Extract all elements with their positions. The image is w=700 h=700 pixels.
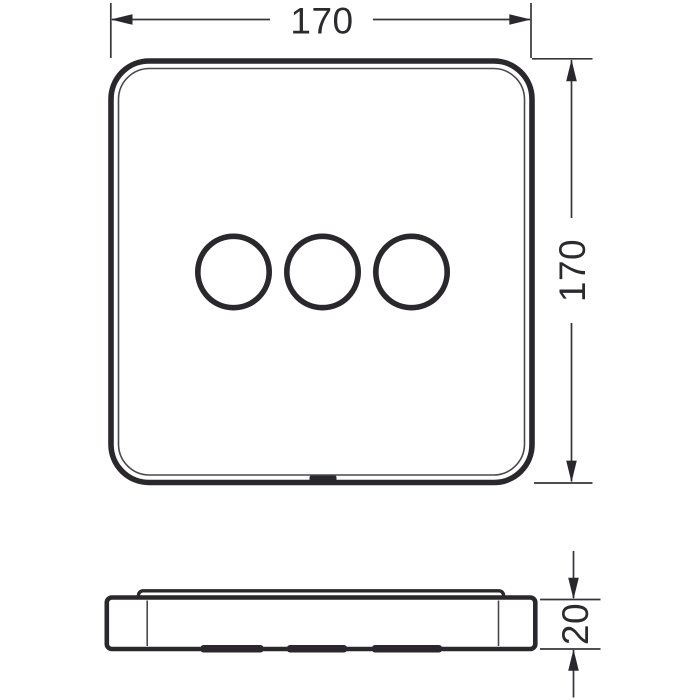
plate-inner-bevel-line — [119, 69, 525, 476]
side-view — [107, 591, 536, 653]
control-opening-center — [287, 236, 358, 307]
width-dimension-label: 170 — [290, 1, 353, 42]
front-view — [111, 61, 532, 484]
side-view-foot-right — [372, 645, 442, 653]
depth-dimension-label: 20 — [555, 603, 596, 645]
depth-arrow-up-icon — [568, 649, 579, 671]
side-view-foot-left — [201, 645, 264, 653]
height-arrow-down-icon — [566, 461, 577, 483]
dimension-depth: 20 — [540, 551, 601, 698]
width-arrow-left-icon — [111, 14, 133, 25]
side-view-foot-center — [287, 645, 347, 653]
height-arrow-up-icon — [566, 60, 577, 82]
depth-arrow-down-icon — [568, 578, 579, 600]
drawing-svg: 170 170 — [0, 0, 700, 700]
dimension-height: 170 — [532, 59, 593, 483]
technical-drawing-canvas: 170 170 — [0, 0, 700, 700]
control-opening-left — [198, 236, 269, 307]
control-opening-right — [376, 236, 447, 307]
height-dimension-label: 170 — [552, 239, 593, 302]
width-arrow-right-icon — [509, 14, 531, 25]
plate-outline — [111, 61, 532, 483]
side-view-body — [107, 598, 536, 650]
dimension-width: 170 — [111, 1, 531, 59]
